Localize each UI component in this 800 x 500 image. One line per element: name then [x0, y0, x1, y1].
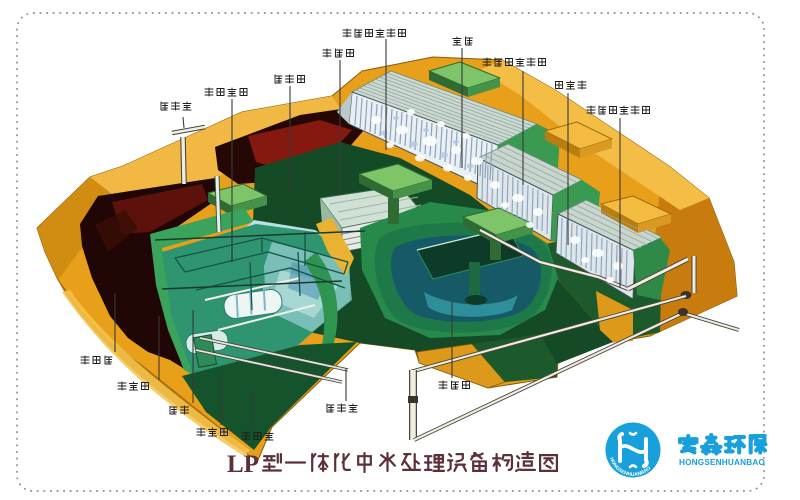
svg-text:LP: LP	[227, 451, 259, 478]
svg-text:HONGSENHUANBAO: HONGSENHUANBAO	[679, 458, 765, 467]
